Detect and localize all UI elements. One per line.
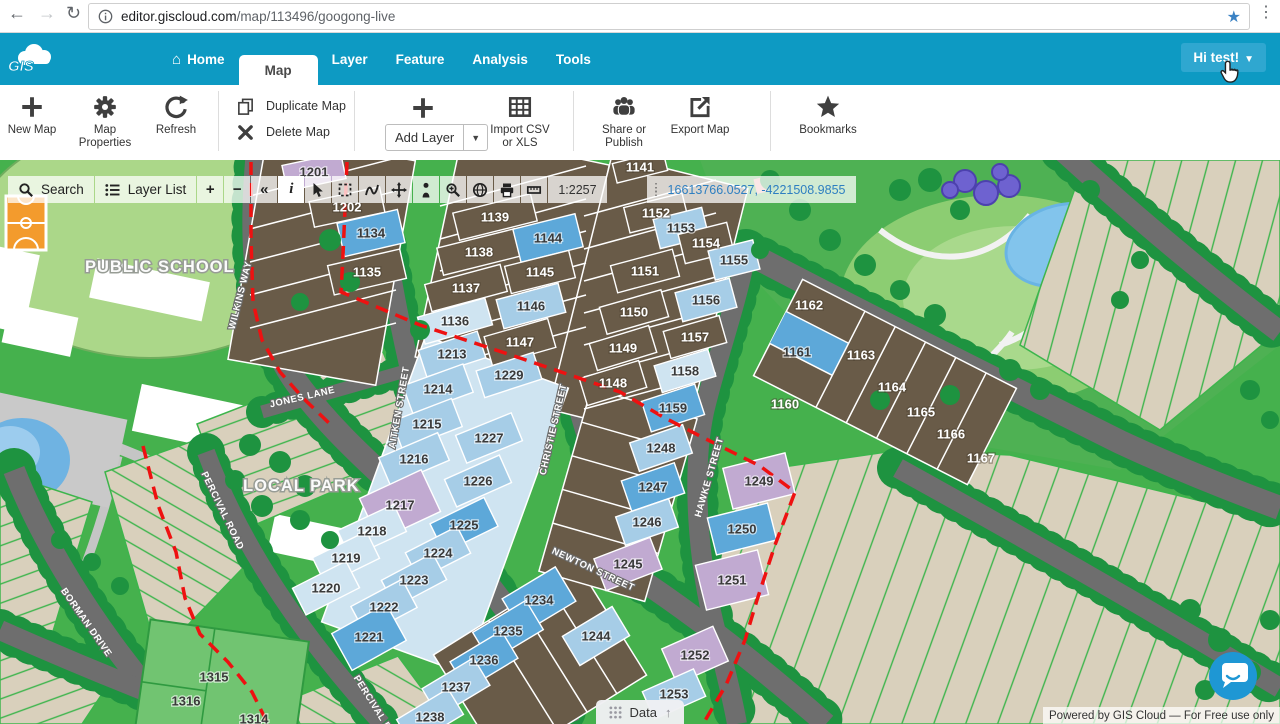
parcel-label-1135: 1135 xyxy=(353,265,381,280)
parcel-label-1222: 1222 xyxy=(370,600,399,615)
parcel-label-1218: 1218 xyxy=(358,524,387,539)
navbar: GIS ⌂HomeMapLayerFeatureAnalysisTools Hi… xyxy=(0,33,1280,85)
zoom-box-button[interactable] xyxy=(440,176,466,203)
parcel-label-1251: 1251 xyxy=(718,573,747,588)
gear-icon xyxy=(92,94,118,120)
full-extent-button[interactable] xyxy=(467,176,493,203)
parcel-label-1153: 1153 xyxy=(667,221,695,236)
parcel-label-1152: 1152 xyxy=(642,206,670,221)
zoom-in-button[interactable]: + xyxy=(197,176,223,203)
people-icon xyxy=(611,94,637,120)
parcel-label-1244: 1244 xyxy=(582,629,612,644)
parcel-label-1215: 1215 xyxy=(413,417,442,432)
parcel-label-1141: 1141 xyxy=(626,160,654,175)
measure-icon xyxy=(526,182,542,198)
forward-icon[interactable]: → xyxy=(38,3,56,24)
grid-icon xyxy=(609,706,622,719)
parcel-label-1236: 1236 xyxy=(470,653,499,668)
parcel-label-1146: 1146 xyxy=(517,299,545,314)
parcel-label-1216: 1216 xyxy=(400,452,429,467)
browser-chrome: ← → ↻ editor.giscloud.com/map/113496/goo… xyxy=(0,0,1280,33)
map-scale: 1:2257 xyxy=(548,176,606,203)
print-icon xyxy=(499,182,515,198)
search-button[interactable]: Search xyxy=(8,176,94,203)
globe-icon xyxy=(472,182,488,198)
parcel-label-1220: 1220 xyxy=(312,581,341,596)
parcel-label-1315: 1315 xyxy=(200,670,229,685)
draw-tool-button[interactable] xyxy=(359,176,385,203)
parcel-label-1219: 1219 xyxy=(332,551,361,566)
parcel-label-1134: 1134 xyxy=(357,226,386,241)
select-tool-button[interactable] xyxy=(332,176,358,203)
url-bar[interactable]: editor.giscloud.com/map/113496/googong-l… xyxy=(88,3,1250,30)
home-icon: ⌂ xyxy=(172,51,181,68)
parcel-label-1316: 1316 xyxy=(172,694,201,709)
parcel-label-1213: 1213 xyxy=(438,347,467,362)
parcel-label-1165: 1165 xyxy=(907,405,935,420)
parcel-label-1138: 1138 xyxy=(465,245,493,260)
back-icon[interactable]: ← xyxy=(8,3,26,24)
place-label: LOCAL PARK xyxy=(243,477,360,495)
parcel-label-1145: 1145 xyxy=(526,265,554,280)
tab-feature[interactable]: Feature xyxy=(382,33,459,85)
pointer-icon xyxy=(310,182,326,198)
giscloud-logo[interactable]: GIS xyxy=(4,37,60,81)
duplicate-map-button[interactable]: Duplicate Map xyxy=(236,97,346,116)
plus-icon xyxy=(19,94,45,120)
delete-map-button[interactable]: Delete Map xyxy=(236,123,330,142)
svg-text:GIS: GIS xyxy=(8,58,34,75)
parcel-label-1237: 1237 xyxy=(442,680,471,695)
info-tool-button[interactable]: i xyxy=(278,176,304,203)
add-layer-button[interactable]: Add Layer ▼ xyxy=(385,124,488,151)
parcel-label-1314: 1314 xyxy=(240,712,270,724)
place-label: PUBLIC SCHOOL xyxy=(85,258,235,276)
parcel-label-1249: 1249 xyxy=(745,474,774,489)
map-properties-button[interactable]: Map Properties xyxy=(67,94,143,149)
parcel-label-1144: 1144 xyxy=(534,231,563,246)
freehand-draw-icon xyxy=(364,182,380,198)
import-csv-button[interactable]: Import CSVor XLS xyxy=(482,94,558,149)
pan-move-icon xyxy=(391,182,407,198)
drag-grip-icon: ⋮⋮ xyxy=(651,186,661,194)
powered-by: Powered by GIS Cloud — For Free use only xyxy=(1043,707,1280,724)
map-graphic[interactable]: 1141120112021134113511391138113711361144… xyxy=(0,160,1280,724)
ribbon-divider xyxy=(770,91,771,151)
parcel-label-1163: 1163 xyxy=(847,348,875,363)
ribbon-divider xyxy=(218,91,219,151)
url-text: editor.giscloud.com/map/113496/googong-l… xyxy=(121,9,395,24)
parcel-label-1248: 1248 xyxy=(647,441,676,456)
refresh-icon xyxy=(163,94,189,120)
parcel-label-1160: 1160 xyxy=(771,397,799,412)
export-icon xyxy=(687,94,713,120)
parcel-label-1224: 1224 xyxy=(424,546,454,561)
bookmark-star-icon[interactable]: ★ xyxy=(1227,7,1241,27)
nav-tabs: ⌂HomeMapLayerFeatureAnalysisTools xyxy=(158,33,605,85)
parcel-label-1149: 1149 xyxy=(609,341,637,356)
parcel-label-1166: 1166 xyxy=(937,427,965,442)
expand-up-icon: ↑ xyxy=(665,705,672,720)
layer-list-button[interactable]: Layer List xyxy=(95,176,197,203)
parcel-label-1147: 1147 xyxy=(506,335,534,350)
zoom-in-icon xyxy=(445,182,461,198)
chat-widget-button[interactable] xyxy=(1208,651,1258,701)
parcel-label-1139: 1139 xyxy=(481,210,509,225)
parcel-label-1234: 1234 xyxy=(525,593,555,608)
new-map-button[interactable]: New Map xyxy=(0,94,70,137)
parcel-label-1161: 1161 xyxy=(783,345,811,360)
parcel-label-1227: 1227 xyxy=(475,431,504,446)
parcel-label-1217: 1217 xyxy=(386,498,415,513)
tab-analysis[interactable]: Analysis xyxy=(458,33,542,85)
zoom-out-button[interactable]: − xyxy=(224,176,250,203)
chevron-down-icon: ▼ xyxy=(1244,54,1254,65)
share-publish-button[interactable]: Share orPublish xyxy=(586,94,662,149)
parcel-label-1151: 1151 xyxy=(631,264,659,279)
ribbon-toolbar: New Map Map Properties Refresh Duplicate… xyxy=(0,85,1280,161)
parcel-label-1247: 1247 xyxy=(639,480,668,495)
street-view-button[interactable] xyxy=(413,176,439,203)
parcel-label-1162: 1162 xyxy=(795,298,823,313)
pointer-tool-button[interactable] xyxy=(305,176,331,203)
refresh-button[interactable]: Refresh xyxy=(138,94,214,137)
select-box-icon xyxy=(337,182,353,198)
parcel-label-1148: 1148 xyxy=(599,376,627,391)
parcel-label-1250: 1250 xyxy=(728,522,757,537)
star-icon xyxy=(815,94,841,120)
collapse-toolbar-button[interactable]: « xyxy=(251,176,277,203)
parcel-label-1235: 1235 xyxy=(494,624,523,639)
print-button[interactable] xyxy=(494,176,520,203)
search-icon xyxy=(18,182,34,198)
parcel-label-1225: 1225 xyxy=(450,518,479,533)
x-icon xyxy=(236,123,255,142)
reload-icon[interactable]: ↻ xyxy=(66,3,81,24)
parcel-label-1159: 1159 xyxy=(659,401,687,416)
ribbon-divider xyxy=(354,91,355,151)
add-layer-plus-icon[interactable] xyxy=(410,95,436,121)
data-panel-tab[interactable]: Data ↑ xyxy=(596,700,684,724)
parcel-label-1221: 1221 xyxy=(355,630,384,645)
page-info-icon[interactable] xyxy=(98,9,113,24)
export-map-button[interactable]: Export Map xyxy=(662,94,738,137)
parcel-label-1245: 1245 xyxy=(614,557,643,572)
list-icon xyxy=(105,182,121,198)
tab-tools[interactable]: Tools xyxy=(542,33,605,85)
ribbon-divider xyxy=(573,91,574,151)
parcel-label-1155: 1155 xyxy=(720,253,748,268)
parcel-label-1137: 1137 xyxy=(452,281,480,296)
parcel-label-1167: 1167 xyxy=(967,451,995,466)
parcel-label-1252: 1252 xyxy=(681,648,710,663)
tab-home[interactable]: ⌂Home xyxy=(158,33,239,85)
coordinates-display[interactable]: ⋮⋮16613766.0527, -4221508.9855 xyxy=(647,176,856,203)
map-toolbar: SearchLayer List+−«i1:2257⋮⋮16613766.052… xyxy=(8,176,856,203)
bookmarks-button[interactable]: Bookmarks xyxy=(790,94,866,137)
parcel-label-1214: 1214 xyxy=(424,382,454,397)
pan-tool-button[interactable] xyxy=(386,176,412,203)
basketball-court-icon xyxy=(6,196,46,250)
browser-menu-icon[interactable]: ⋮ xyxy=(1258,2,1274,22)
parcel-label-1154: 1154 xyxy=(692,236,721,251)
parcel-label-1164: 1164 xyxy=(878,380,907,395)
tab-layer[interactable]: Layer xyxy=(318,33,382,85)
table-icon xyxy=(507,94,533,120)
mouse-hand-cursor xyxy=(1218,60,1240,84)
parcel-label-1238: 1238 xyxy=(416,710,445,724)
map-canvas[interactable]: 1141120112021134113511391138113711361144… xyxy=(0,160,1280,724)
parcel-label-1246: 1246 xyxy=(633,515,662,530)
parcel-label-1158: 1158 xyxy=(671,364,699,379)
parcel-label-1157: 1157 xyxy=(681,330,709,345)
parcel-label-1229: 1229 xyxy=(495,368,524,383)
measure-button[interactable] xyxy=(521,176,547,203)
parcel-label-1223: 1223 xyxy=(400,573,429,588)
street-view-icon xyxy=(418,182,434,198)
parcel-label-1136: 1136 xyxy=(441,314,469,329)
parcel-label-1150: 1150 xyxy=(620,305,648,320)
tab-map[interactable]: Map xyxy=(239,55,318,85)
parcel-label-1156: 1156 xyxy=(692,293,720,308)
parcel-label-1226: 1226 xyxy=(464,474,493,489)
duplicate-icon xyxy=(236,97,255,116)
